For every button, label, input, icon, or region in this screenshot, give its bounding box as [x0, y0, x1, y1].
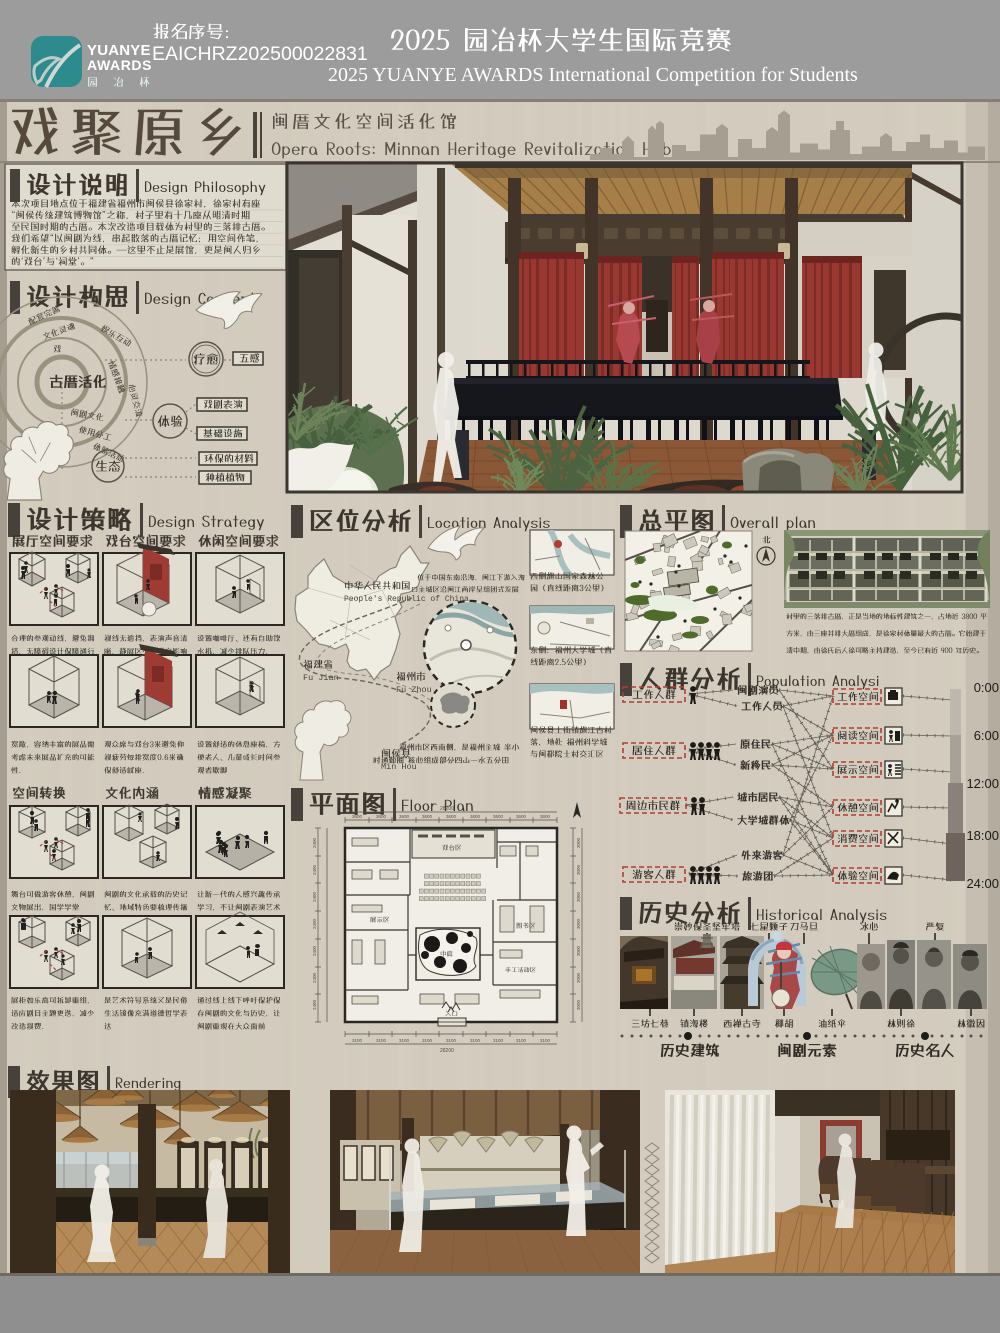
svg-text:3100: 3100 [516, 1038, 527, 1043]
svg-text:3600: 3600 [470, 814, 481, 819]
svg-text:3100: 3100 [540, 1038, 551, 1043]
svg-text:3000: 3000 [576, 972, 581, 983]
svg-text:3600: 3600 [446, 814, 457, 819]
svg-text:3600: 3600 [352, 814, 363, 819]
svg-text:3600: 3600 [422, 814, 433, 819]
svg-text:Fu Zhou: Fu Zhou [396, 685, 432, 695]
svg-text:3100: 3100 [422, 1038, 433, 1043]
svg-text:3600: 3600 [376, 814, 387, 819]
svg-text:3100: 3100 [493, 1038, 504, 1043]
svg-text:3100: 3100 [446, 1038, 457, 1043]
svg-text:3100: 3100 [399, 1038, 410, 1043]
svg-text:Fu Jian: Fu Jian [303, 673, 339, 683]
svg-text:2400: 2400 [312, 945, 317, 956]
svg-text:2400: 2400 [312, 972, 317, 983]
svg-text:3000: 3000 [576, 837, 581, 848]
svg-text:People's Republic of China: People's Republic of China [344, 595, 469, 604]
svg-text:28200: 28200 [440, 806, 454, 812]
svg-text:12:00: 12:00 [966, 776, 999, 791]
svg-text:2400: 2400 [312, 837, 317, 848]
svg-text:2400: 2400 [312, 999, 317, 1010]
svg-text:3000: 3000 [576, 999, 581, 1010]
svg-text:3600: 3600 [540, 814, 551, 819]
svg-text:2400: 2400 [312, 864, 317, 875]
svg-text:6:00: 6:00 [974, 728, 999, 743]
svg-text:Min Hou: Min Hou [381, 762, 417, 772]
svg-text:3100: 3100 [470, 1038, 481, 1043]
svg-text:3000: 3000 [576, 918, 581, 929]
svg-text:EAICHRZ202500022831: EAICHRZ202500022831 [152, 43, 368, 65]
svg-text:3100: 3100 [352, 1038, 363, 1043]
svg-text:3600: 3600 [493, 814, 504, 819]
svg-text:3100: 3100 [376, 1038, 387, 1043]
svg-text:28200: 28200 [440, 1048, 454, 1054]
svg-text:0:00: 0:00 [974, 680, 999, 695]
svg-text:3600: 3600 [399, 814, 410, 819]
svg-text:18:00: 18:00 [966, 828, 999, 843]
svg-text:2400: 2400 [312, 891, 317, 902]
svg-text:AWARDS: AWARDS [87, 57, 152, 73]
svg-text:2025 YUANYE AWARDS Internation: 2025 YUANYE AWARDS International Competi… [328, 64, 858, 86]
svg-text:3000: 3000 [576, 864, 581, 875]
svg-text:2400: 2400 [312, 918, 317, 929]
svg-text:3600: 3600 [516, 814, 527, 819]
svg-text:3000: 3000 [576, 945, 581, 956]
svg-text:3000: 3000 [576, 891, 581, 902]
svg-text:24:00: 24:00 [966, 876, 999, 891]
